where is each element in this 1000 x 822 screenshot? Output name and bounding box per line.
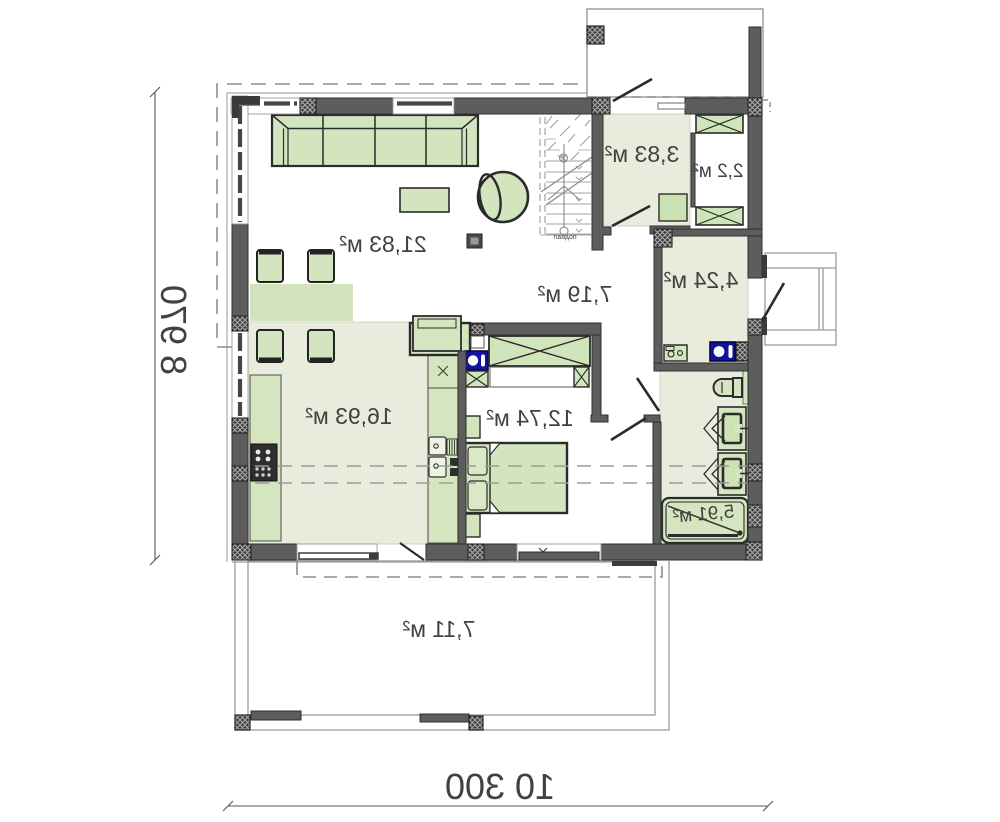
svg-text:10 300: 10 300 (445, 766, 555, 807)
svg-text:подвал: подвал (553, 234, 576, 241)
svg-text:8 970: 8 970 (153, 285, 194, 375)
svg-text:7,19 м²: 7,19 м² (537, 281, 612, 307)
svg-text:3,83 м²: 3,83 м² (604, 141, 679, 167)
svg-text:12,74 м²: 12,74 м² (486, 405, 574, 431)
svg-text:16,93 м²: 16,93 м² (305, 403, 393, 429)
svg-text:4,24 м²: 4,24 м² (663, 267, 738, 293)
svg-text:7,11 м²: 7,11 м² (402, 616, 475, 642)
svg-text:2,2 м²: 2,2 м² (692, 161, 743, 182)
svg-text:21,83 м²: 21,83 м² (339, 231, 427, 257)
